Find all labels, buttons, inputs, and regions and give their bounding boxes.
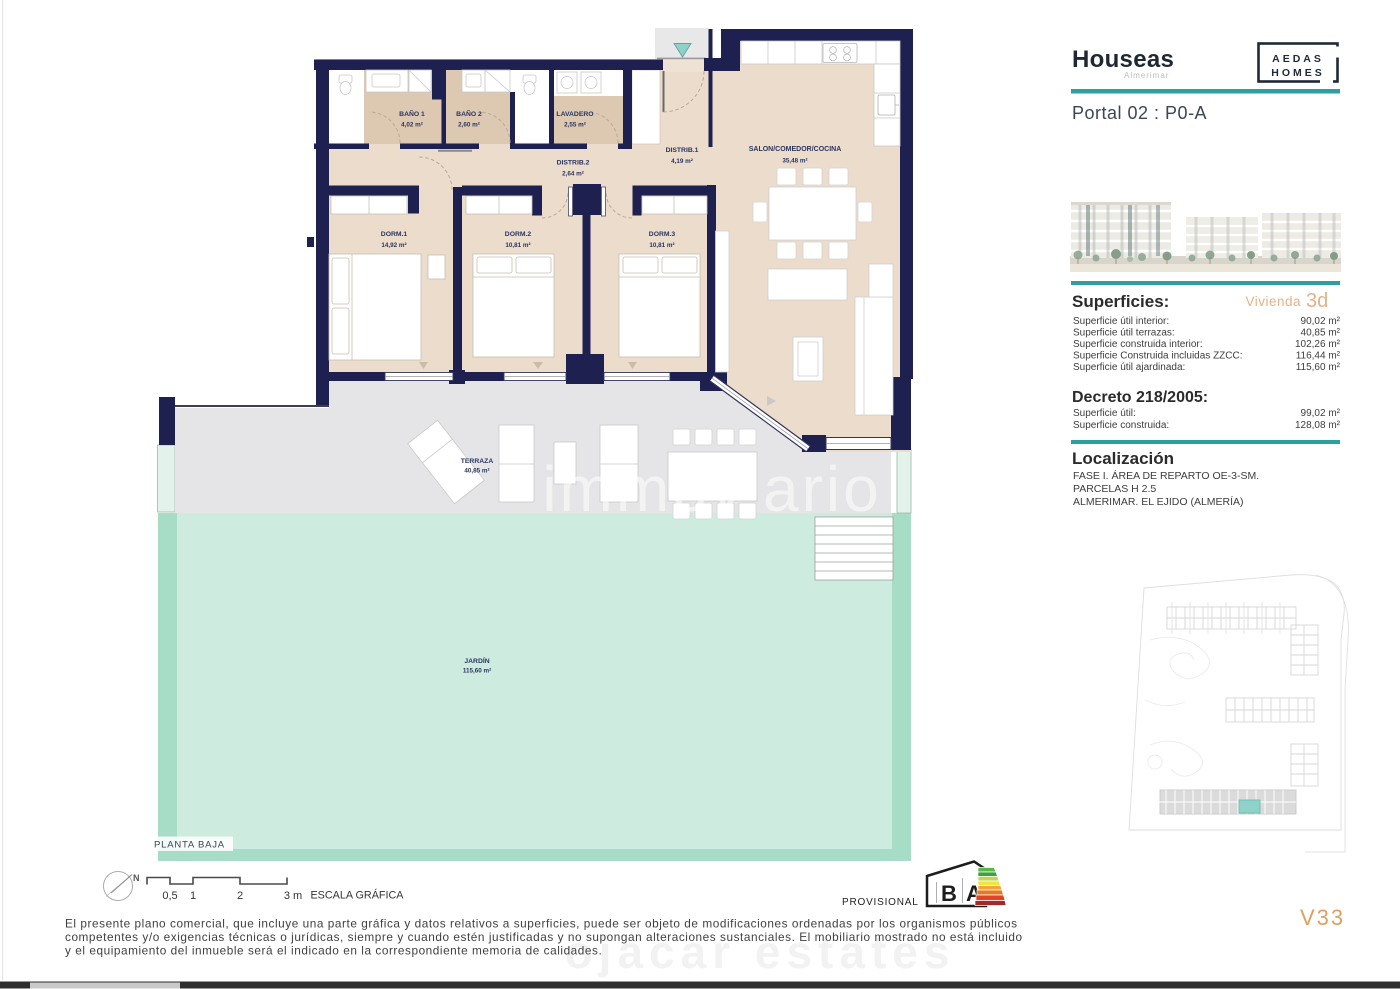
svg-text:2,60 m²: 2,60 m² bbox=[458, 122, 480, 129]
svg-text:El presente plano comercial, q: El presente plano comercial, que incluye… bbox=[65, 917, 1018, 931]
svg-text:ESCALA GRÁFICA: ESCALA GRÁFICA bbox=[310, 889, 404, 902]
svg-text:10,81 m²: 10,81 m² bbox=[505, 242, 530, 249]
svg-text:Superficie construida interior: Superficie construida interior: bbox=[1073, 339, 1203, 350]
svg-text:35,48 m²: 35,48 m² bbox=[782, 158, 807, 165]
svg-text:Vivienda: Vivienda bbox=[1245, 294, 1301, 309]
svg-text:128,08 m²: 128,08 m² bbox=[1295, 420, 1341, 431]
svg-text:B: B bbox=[941, 881, 957, 906]
svg-text:Superficie útil:: Superficie útil: bbox=[1073, 408, 1136, 419]
svg-text:DORM.2: DORM.2 bbox=[505, 231, 532, 238]
svg-text:Houseas: Houseas bbox=[1072, 46, 1174, 73]
svg-text:DISTRIB.2: DISTRIB.2 bbox=[557, 160, 590, 167]
svg-text:immovʼario: immovʼario bbox=[542, 453, 881, 525]
svg-text:SALON/COMEDOR/COCINA: SALON/COMEDOR/COCINA bbox=[749, 146, 842, 153]
svg-text:Localización: Localización bbox=[1072, 449, 1174, 468]
svg-text:TERRAZA: TERRAZA bbox=[461, 458, 494, 465]
svg-text:Superficies:: Superficies: bbox=[1072, 292, 1169, 311]
svg-text:Almerimar: Almerimar bbox=[1124, 71, 1169, 80]
svg-text:LAVADERO: LAVADERO bbox=[556, 111, 593, 118]
svg-text:0,5: 0,5 bbox=[162, 890, 177, 902]
svg-text:90,02 m²: 90,02 m² bbox=[1301, 316, 1341, 327]
svg-text:JARDÍN: JARDÍN bbox=[464, 656, 489, 665]
svg-text:3 m: 3 m bbox=[284, 890, 302, 902]
svg-text:Superficie Construida incluida: Superficie Construida incluidas ZZCC: bbox=[1073, 351, 1243, 362]
svg-text:Superficie útil ajardinada:: Superficie útil ajardinada: bbox=[1073, 362, 1185, 373]
svg-text:2,55 m²: 2,55 m² bbox=[564, 122, 586, 129]
svg-text:115,60 m²: 115,60 m² bbox=[1296, 362, 1341, 373]
svg-text:99,02 m²: 99,02 m² bbox=[1301, 408, 1341, 419]
svg-text:10,81 m²: 10,81 m² bbox=[649, 242, 674, 249]
svg-text:PROVISIONAL: PROVISIONAL bbox=[842, 897, 919, 908]
svg-text:1: 1 bbox=[190, 890, 196, 902]
svg-text:40,85 m²: 40,85 m² bbox=[464, 468, 489, 475]
svg-text:Superficie útil interior:: Superficie útil interior: bbox=[1073, 316, 1169, 327]
svg-text:2,64 m²: 2,64 m² bbox=[562, 171, 584, 178]
svg-text:DISTRIB.1: DISTRIB.1 bbox=[666, 147, 699, 154]
svg-text:3d: 3d bbox=[1306, 290, 1328, 312]
svg-text:FASE I. ÁREA DE REPARTO OE-3-S: FASE I. ÁREA DE REPARTO OE-3-SM. bbox=[1073, 469, 1259, 482]
svg-text:V33: V33 bbox=[1300, 905, 1345, 930]
svg-text:N: N bbox=[133, 873, 140, 883]
svg-text:DORM.1: DORM.1 bbox=[381, 231, 408, 238]
svg-text:DORM.3: DORM.3 bbox=[649, 231, 676, 238]
svg-text:Decreto 218/2005:: Decreto 218/2005: bbox=[1072, 389, 1208, 406]
svg-text:115,60 m²: 115,60 m² bbox=[463, 668, 491, 675]
svg-text:102,26 m²: 102,26 m² bbox=[1295, 339, 1341, 350]
svg-text:2: 2 bbox=[237, 890, 243, 902]
svg-text:competentes y/o exigencias téc: competentes y/o exigencias técnicas o ju… bbox=[65, 930, 1023, 944]
svg-text:Superficie útil terrazas:: Superficie útil terrazas: bbox=[1073, 328, 1175, 339]
svg-text:PLANTA BAJA: PLANTA BAJA bbox=[154, 840, 225, 851]
svg-text:PARCELAS H 2.5: PARCELAS H 2.5 bbox=[1073, 483, 1156, 495]
svg-text:ALMERIMAR. EL EJIDO (ALMERÍA): ALMERIMAR. EL EJIDO (ALMERÍA) bbox=[1073, 495, 1244, 508]
svg-text:116,44 m²: 116,44 m² bbox=[1296, 351, 1341, 362]
svg-text:BAÑO 2: BAÑO 2 bbox=[456, 109, 482, 118]
svg-text:14,92 m²: 14,92 m² bbox=[381, 242, 406, 249]
svg-text:HOMES: HOMES bbox=[1271, 67, 1325, 79]
svg-text:AEDAS: AEDAS bbox=[1272, 53, 1324, 65]
svg-text:Superficie construida:: Superficie construida: bbox=[1073, 420, 1169, 431]
svg-text:BAÑO 1: BAÑO 1 bbox=[399, 109, 425, 118]
svg-text:40,85 m²: 40,85 m² bbox=[1301, 328, 1341, 339]
svg-text:y el equipamiento del inmueble: y el equipamiento del inmueble será el i… bbox=[65, 944, 602, 958]
svg-text:Portal 02 : P0-A: Portal 02 : P0-A bbox=[1072, 103, 1207, 123]
svg-text:4,19 m²: 4,19 m² bbox=[671, 158, 693, 165]
svg-text:4,02 m²: 4,02 m² bbox=[401, 122, 423, 129]
